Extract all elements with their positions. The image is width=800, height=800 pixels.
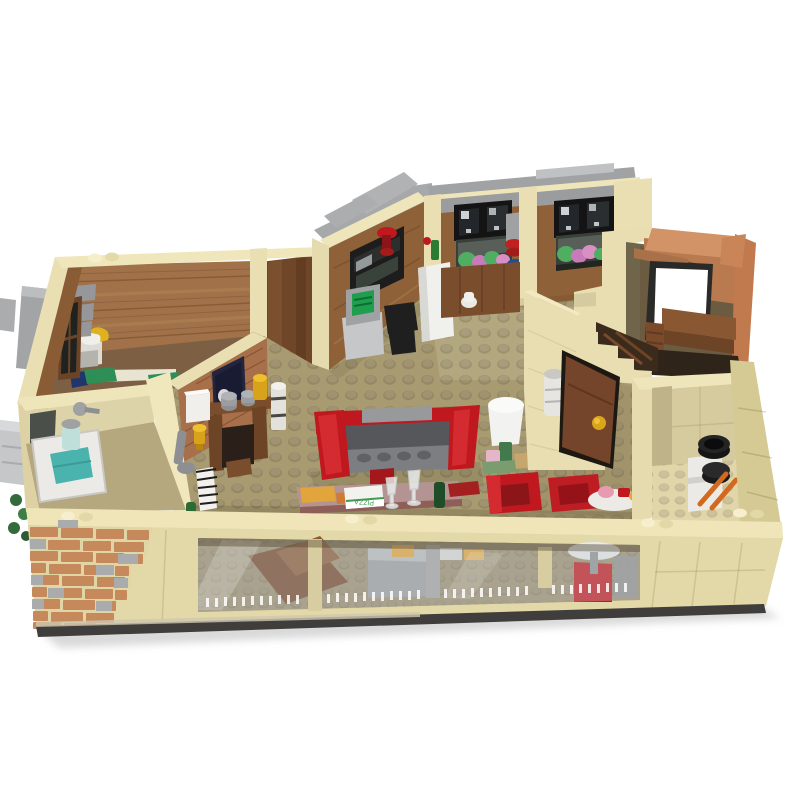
svg-text:PIZZA: PIZZA [354,497,375,505]
